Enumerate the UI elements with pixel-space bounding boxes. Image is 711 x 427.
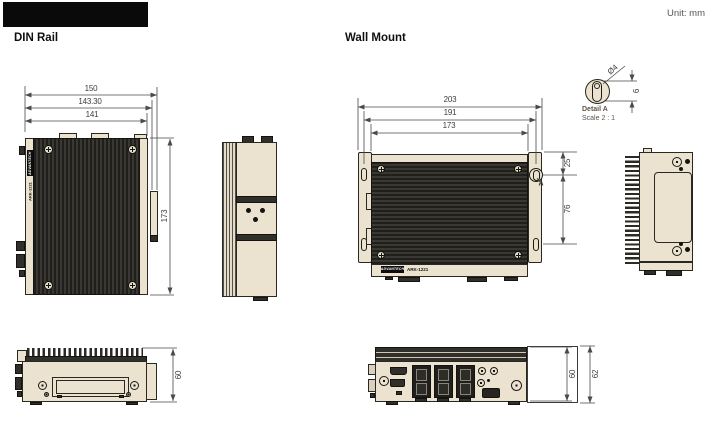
usb-port-module	[456, 365, 475, 398]
usb-module-tab	[459, 398, 471, 402]
side-connector	[16, 254, 25, 268]
bottom-foot	[126, 402, 138, 405]
usb-port	[416, 383, 427, 395]
detail-a-keyhole-circle	[594, 83, 600, 89]
usb-module-tab	[437, 398, 449, 402]
antenna-hole	[672, 246, 682, 256]
detail-marker-a: A	[538, 181, 543, 188]
wall-width-outer-dim: 203	[444, 96, 457, 104]
hdmi-port	[390, 367, 407, 375]
side-tab	[368, 364, 376, 375]
bottom-port-bump	[398, 277, 420, 282]
screw	[685, 247, 690, 252]
heatsink-fins	[371, 162, 528, 265]
heatsink-fin-teeth	[625, 154, 640, 264]
terminal-recess-inner	[56, 380, 125, 394]
right-side-strip	[139, 138, 148, 295]
din-width-outer-dim: 150	[85, 85, 98, 93]
brand-logo-text: ADVANTECH	[29, 151, 33, 175]
side-connector	[16, 241, 25, 251]
side-connector	[15, 364, 22, 374]
redacted-title-bar	[3, 2, 148, 27]
small-port	[57, 395, 62, 398]
small-hole	[126, 392, 131, 397]
antenna-hole	[511, 380, 522, 391]
led-indicator	[396, 391, 402, 395]
antenna-hole	[38, 381, 47, 390]
wall-offset-top-dim: 25	[564, 159, 572, 168]
din-height-dim: 173	[161, 210, 169, 223]
wall-width-mid-dim: 191	[444, 109, 457, 117]
usb-module-tab	[415, 398, 427, 402]
usb-port	[460, 369, 471, 381]
detail-a-diameter-dim: Ø4	[606, 64, 619, 77]
model-label: ARK-1221	[26, 177, 34, 207]
mounting-screw-hole	[377, 251, 385, 259]
clip-screw	[260, 208, 265, 213]
wall-mount-title: Wall Mount	[345, 33, 406, 45]
detail-a-slot-dim: 6	[633, 89, 641, 93]
side-connector	[370, 393, 375, 398]
usb-port	[460, 383, 471, 395]
fin-edge-strip	[222, 142, 237, 297]
mounting-screw-hole	[377, 165, 385, 173]
antenna-hole	[130, 381, 139, 390]
usb-port-module	[412, 365, 431, 398]
wall-front-height-body-dim: 60	[569, 370, 577, 379]
antenna-hole	[672, 157, 682, 167]
side-connector	[17, 391, 22, 397]
din-width-mid-dim: 143.30	[78, 98, 101, 106]
din-width-inner-dim: 141	[86, 111, 99, 119]
bracket-slot	[533, 238, 539, 251]
usb-port-module	[434, 365, 453, 398]
brand-logo-text: ADVANTECH	[381, 268, 404, 272]
din-rail-clip-hook	[150, 235, 158, 242]
din-clip-band	[236, 234, 277, 241]
mounting-screw-hole	[514, 251, 522, 259]
serial-db9-port	[482, 388, 500, 398]
drawing-sheet: Unit: mm DIN Rail Wall Mount ADVANTECH A…	[0, 0, 711, 427]
brand-logo: ADVANTECH	[27, 150, 34, 176]
din-rail-title: DIN Rail	[14, 33, 58, 45]
small-hole	[44, 392, 49, 397]
din-front-height-dim: 60	[175, 371, 183, 380]
brand-logo: ADVANTECH	[381, 266, 404, 273]
unit-label: Unit: mm	[667, 9, 705, 19]
right-end-cap	[146, 363, 157, 400]
side-connector	[19, 146, 25, 155]
usb-port	[438, 383, 449, 395]
bottom-foot	[644, 270, 656, 275]
bottom-foot	[386, 401, 398, 405]
displayport-port	[390, 379, 405, 387]
mounting-screw-hole	[128, 145, 137, 154]
bottom-port-bump	[467, 277, 487, 282]
bottom-port-bump	[504, 277, 518, 281]
bracket-slot	[361, 168, 367, 181]
screw	[679, 167, 683, 171]
bottom-foot	[385, 277, 393, 280]
side-connector	[15, 377, 22, 390]
bottom-foot	[30, 402, 42, 405]
clip-screw	[253, 217, 258, 222]
small-port	[119, 395, 124, 398]
bottom-foot	[253, 297, 268, 301]
mounting-screw-hole	[514, 165, 522, 173]
power-button	[379, 376, 389, 386]
mounting-screw-hole	[128, 281, 137, 290]
side-tab	[368, 379, 376, 392]
audio-jack	[478, 367, 486, 375]
wall-slot-spacing-dim: 76	[564, 205, 572, 214]
detail-a-scale: Scale 2 : 1	[582, 114, 615, 123]
keyhole-slot-a-inner	[533, 170, 540, 181]
model-label: ARK-1221	[407, 266, 428, 273]
screw	[679, 242, 683, 246]
usb-port	[438, 369, 449, 381]
heatsink-fins	[33, 138, 140, 295]
din-clip-band	[236, 196, 277, 203]
screw	[685, 159, 690, 164]
audio-jack	[477, 379, 485, 387]
bottom-foot	[666, 270, 682, 276]
mounting-screw-hole	[44, 145, 53, 154]
usb-port	[416, 369, 427, 381]
mounting-screw-hole	[44, 281, 53, 290]
wall-width-inner-dim: 173	[443, 122, 456, 130]
bottom-foot	[508, 401, 520, 405]
wall-front-height-total-dim: 62	[592, 370, 600, 379]
clip-screw	[246, 208, 251, 213]
access-panel	[654, 172, 692, 243]
heatsink-edge-stack	[375, 347, 527, 362]
led-dot	[487, 379, 490, 382]
audio-jack	[490, 367, 498, 375]
side-connector	[19, 270, 25, 277]
